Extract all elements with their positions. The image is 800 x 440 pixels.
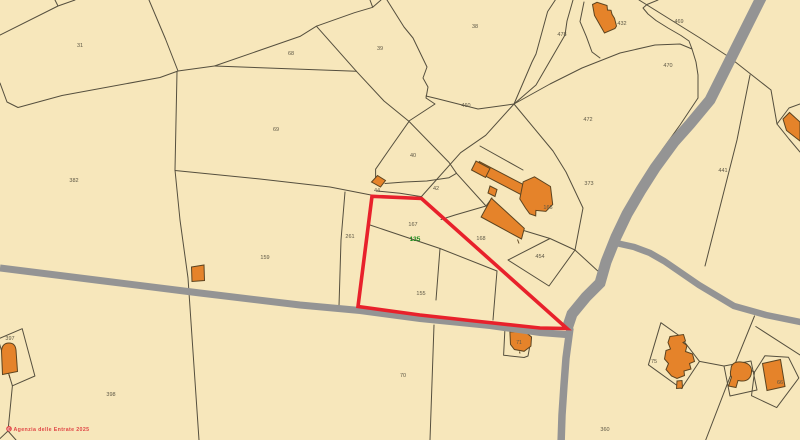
svg-text:66: 66 <box>777 380 783 386</box>
svg-text:469: 469 <box>674 19 683 25</box>
svg-text:44: 44 <box>374 188 380 194</box>
svg-text:432: 432 <box>617 21 626 27</box>
svg-text:Agenzia delle Entrate 2025: Agenzia delle Entrate 2025 <box>14 427 90 433</box>
svg-text:70: 70 <box>400 373 406 379</box>
svg-text:39: 39 <box>377 46 383 52</box>
svg-text:470: 470 <box>663 63 672 69</box>
svg-text:441: 441 <box>718 168 727 174</box>
svg-text:454: 454 <box>535 254 544 260</box>
svg-text:360: 360 <box>600 427 609 433</box>
svg-text:398: 398 <box>106 392 115 398</box>
svg-text:167: 167 <box>408 222 417 228</box>
svg-text:68: 68 <box>288 51 294 57</box>
svg-text:155: 155 <box>416 291 425 297</box>
svg-text:460: 460 <box>461 103 470 109</box>
svg-text:166: 166 <box>543 205 552 211</box>
svg-text:397: 397 <box>5 336 14 342</box>
svg-text:382: 382 <box>69 178 78 184</box>
svg-text:31: 31 <box>77 43 83 49</box>
svg-text:168: 168 <box>476 236 485 242</box>
svg-text:472: 472 <box>583 117 592 123</box>
svg-text:261: 261 <box>345 234 354 240</box>
svg-text:71: 71 <box>516 340 522 346</box>
svg-text:478: 478 <box>557 32 566 38</box>
svg-text:75: 75 <box>651 359 657 365</box>
svg-text:38: 38 <box>472 24 478 30</box>
svg-text:40: 40 <box>410 153 416 159</box>
svg-text:159: 159 <box>260 255 269 261</box>
svg-text:373: 373 <box>584 181 593 187</box>
svg-text:135: 135 <box>410 236 421 243</box>
svg-text:42: 42 <box>433 186 439 192</box>
svg-text:69: 69 <box>273 127 279 133</box>
